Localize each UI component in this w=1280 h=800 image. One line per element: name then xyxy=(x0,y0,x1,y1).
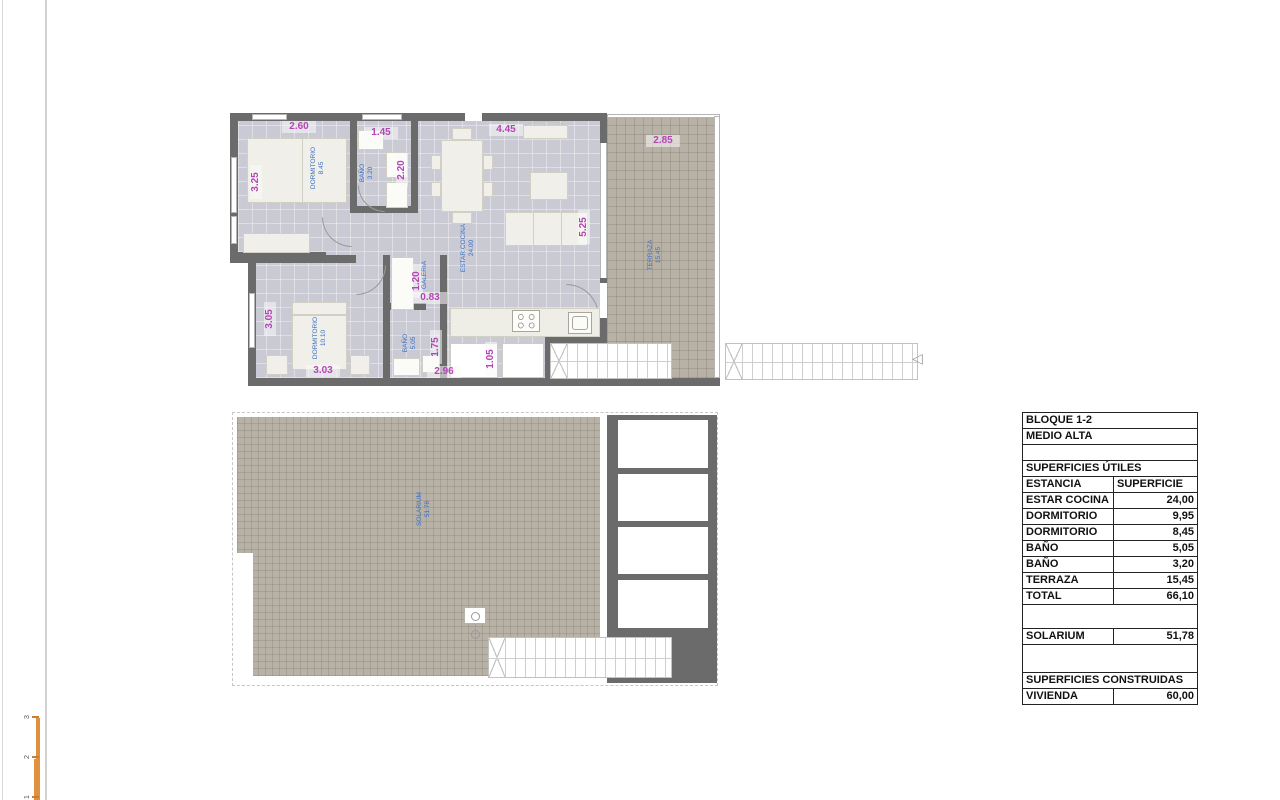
stair-midline xyxy=(489,658,671,659)
sofa xyxy=(505,212,534,246)
scale-bar: 3 2 1 xyxy=(20,705,50,800)
window xyxy=(231,157,237,213)
room-label-terraza: TERRAZA 15.45 xyxy=(647,220,663,290)
solarium-plan: SOLARIUM 51.78 xyxy=(230,410,720,690)
dim-label: 4.45 xyxy=(489,124,523,136)
table-value: 66,10 xyxy=(1114,589,1198,605)
scale-tick xyxy=(32,756,39,758)
scale-tick-label: 2 xyxy=(23,751,33,763)
terrace-door-gap xyxy=(600,283,607,318)
staircase-interior xyxy=(550,343,672,379)
table-room-vivienda: VIVIENDA xyxy=(1023,689,1114,705)
coffee-table xyxy=(530,172,568,200)
scale-tick-label: 1 xyxy=(23,791,33,800)
staircase-solarium xyxy=(488,637,672,678)
table-value: 24,00 xyxy=(1114,493,1198,509)
chair xyxy=(483,182,493,197)
scale-tick xyxy=(32,716,39,718)
dim-label: 2.20 xyxy=(396,153,408,187)
room-name: TERRAZA xyxy=(647,220,655,290)
wall xyxy=(350,121,357,213)
dresser xyxy=(243,233,310,253)
room-label-bano-1: BAÑO 3.20 xyxy=(359,138,375,208)
table-spacer xyxy=(1023,605,1198,629)
terraza-glass-rail xyxy=(714,116,720,378)
room-label-dormitorio-2: DORMITORIO 10.10 xyxy=(312,303,328,373)
room-area: 10.10 xyxy=(320,303,328,373)
room-area: 5.05 xyxy=(410,308,418,378)
table-section-utiles: SUPERFICIES ÚTILES xyxy=(1023,461,1198,477)
chair xyxy=(483,155,493,170)
table-value: 15,45 xyxy=(1114,573,1198,589)
table-value: 9,95 xyxy=(1114,509,1198,525)
table-room: BAÑO xyxy=(1023,541,1114,557)
frame-line xyxy=(2,0,3,800)
room-name: BAÑO xyxy=(359,138,367,208)
table-header-estancia: ESTANCIA xyxy=(1023,477,1114,493)
kitchen-sink xyxy=(568,312,592,334)
room-area: 8.45 xyxy=(318,133,326,203)
scale-bar-segment xyxy=(36,718,40,759)
surface-table: BLOQUE 1-2 MEDIO ALTA SUPERFICIES ÚTILES… xyxy=(1022,412,1198,705)
dim-label: 3.05 xyxy=(264,302,276,336)
dim-label: 2.96 xyxy=(427,366,461,378)
table-room: ESTAR COCINA xyxy=(1023,493,1114,509)
room-label-bano-2: BAÑO 5.05 xyxy=(402,308,418,378)
room-label-galeria: GALERIA xyxy=(421,240,437,310)
table-spacer xyxy=(1023,445,1198,461)
scale-bar-segment xyxy=(34,759,40,800)
drawing-sheet: 2.60 3.25 1.45 2.20 4.45 5.25 2.85 1.20 … xyxy=(0,0,1280,800)
room-name: DORMITORIO xyxy=(312,303,320,373)
room-name: GALERIA xyxy=(421,240,429,310)
window xyxy=(231,216,237,244)
table-value: 8,45 xyxy=(1114,525,1198,541)
room-name: DORMITORIO xyxy=(310,133,318,203)
staircase-exterior xyxy=(725,343,918,380)
decor-curve xyxy=(525,121,566,127)
frame-line xyxy=(45,0,47,800)
room-area: 24.00 xyxy=(468,213,476,283)
room-area: 15.45 xyxy=(655,220,663,290)
window xyxy=(252,114,287,120)
stair-midline xyxy=(726,362,917,363)
stair-midline xyxy=(551,361,671,362)
table-value-solarium: 51,78 xyxy=(1114,629,1198,645)
roof-opening xyxy=(618,474,708,521)
dim-label: 2.85 xyxy=(646,135,680,147)
sink-fixture xyxy=(464,607,486,624)
table-title-bloque: BLOQUE 1-2 xyxy=(1023,413,1198,429)
chair xyxy=(452,128,472,140)
roof-opening xyxy=(618,420,708,468)
roof-opening xyxy=(618,580,708,628)
wardrobe xyxy=(502,343,544,378)
wall xyxy=(600,121,607,143)
table-room: TERRAZA xyxy=(1023,573,1114,589)
dim-label: 2.60 xyxy=(282,121,316,133)
table-value: 5,05 xyxy=(1114,541,1198,557)
table-room: BAÑO xyxy=(1023,557,1114,573)
table-room: DORMITORIO xyxy=(1023,525,1114,541)
table-header-superficie: SUPERFICIE xyxy=(1114,477,1198,493)
dim-label: 3.25 xyxy=(250,165,262,199)
table-value: 3,20 xyxy=(1114,557,1198,573)
dim-label: 1.75 xyxy=(430,330,442,364)
room-label-solarium: SOLARIUM 51.78 xyxy=(416,474,432,544)
chair xyxy=(431,182,441,197)
wall xyxy=(248,378,720,386)
table-title-altura: MEDIO ALTA xyxy=(1023,429,1198,445)
wall xyxy=(411,121,418,213)
terrace-glazing xyxy=(600,143,607,278)
exterior-gap xyxy=(238,263,248,378)
room-area: 51.78 xyxy=(424,474,432,544)
dim-label: 5.25 xyxy=(578,210,590,244)
scale-tick-label: 3 xyxy=(23,711,33,723)
direction-arrow-icon: ◁ xyxy=(912,352,923,366)
scale-tick xyxy=(32,796,39,798)
table-section-construidas: SUPERFICIES CONSTRUIDAS xyxy=(1023,673,1198,689)
room-label-dormitorio-1: DORMITORIO 8.45 xyxy=(310,133,326,203)
cooktop xyxy=(512,310,540,332)
wall xyxy=(256,255,356,263)
sofa xyxy=(533,212,562,246)
table-room-solarium: SOLARIUM xyxy=(1023,629,1114,645)
room-name: ESTAR COCINA xyxy=(460,213,468,283)
roof-opening xyxy=(618,527,708,574)
window xyxy=(249,293,255,348)
dining-table xyxy=(441,140,483,212)
window xyxy=(362,114,402,120)
table-value-vivienda: 60,00 xyxy=(1114,689,1198,705)
chair xyxy=(431,155,441,170)
entry-door-gap xyxy=(465,113,482,121)
table-room: DORMITORIO xyxy=(1023,509,1114,525)
sideboard xyxy=(523,125,568,139)
dim-label: 1.05 xyxy=(485,342,497,376)
room-label-estar-cocina: ESTAR COCINA 24.00 xyxy=(460,213,476,283)
nightstand xyxy=(266,355,288,375)
table-spacer xyxy=(1023,645,1198,673)
nightstand xyxy=(350,355,370,375)
terraza-top-rail xyxy=(607,114,720,118)
room-name: BAÑO xyxy=(402,308,410,378)
floor-plan-upper: 2.60 3.25 1.45 2.20 4.45 5.25 2.85 1.20 … xyxy=(230,113,720,387)
room-name: SOLARIUM xyxy=(416,474,424,544)
room-area: 3.20 xyxy=(367,138,375,208)
table-room: TOTAL xyxy=(1023,589,1114,605)
